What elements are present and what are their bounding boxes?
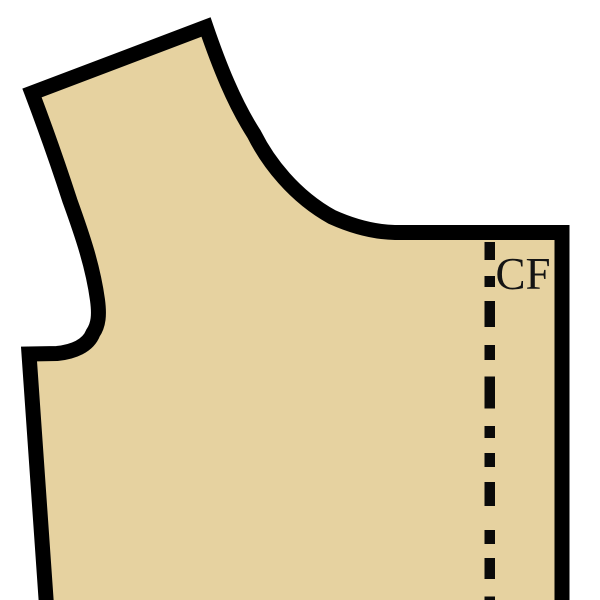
svg-text:CF: CF xyxy=(496,249,551,299)
